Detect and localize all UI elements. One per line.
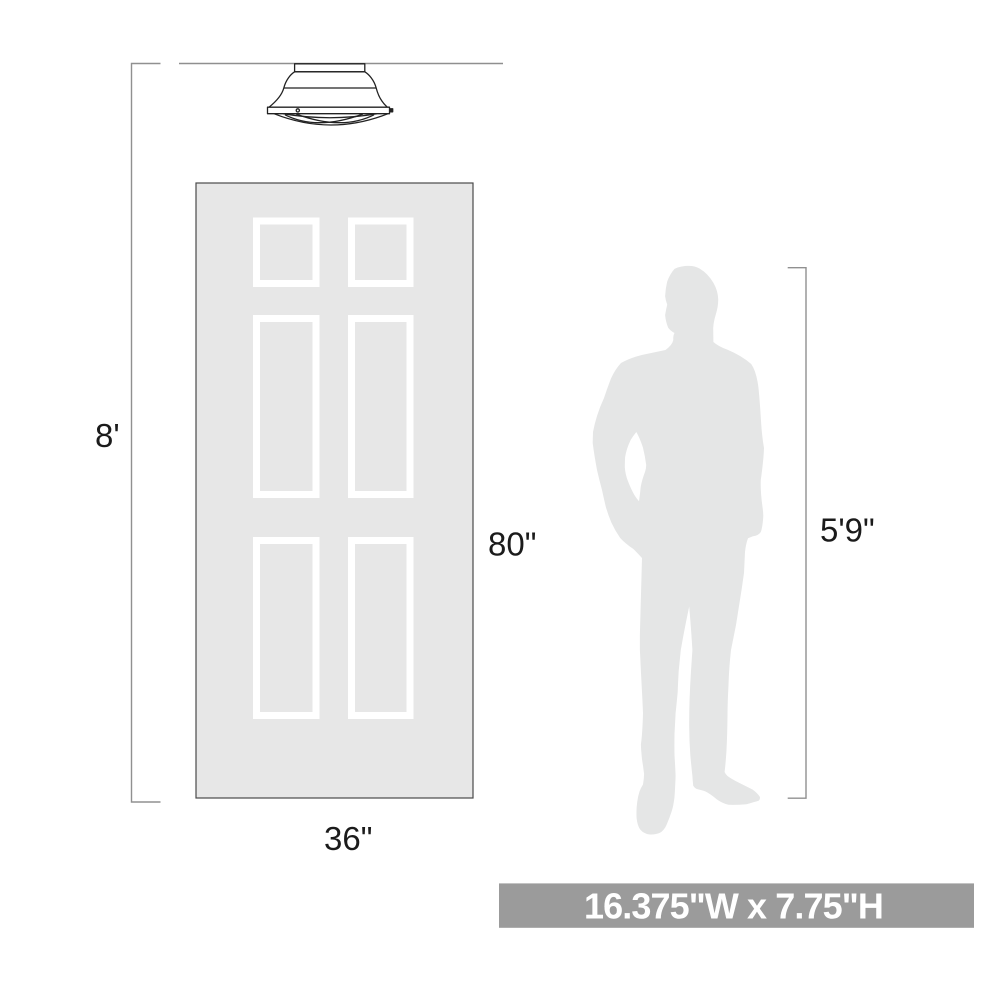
svg-text:5'9": 5'9" bbox=[820, 512, 875, 549]
svg-text:36": 36" bbox=[324, 820, 372, 857]
svg-text:16.375"W x 7.75"H: 16.375"W x 7.75"H bbox=[584, 886, 883, 927]
svg-text:8': 8' bbox=[95, 417, 120, 454]
svg-text:80": 80" bbox=[488, 526, 536, 563]
